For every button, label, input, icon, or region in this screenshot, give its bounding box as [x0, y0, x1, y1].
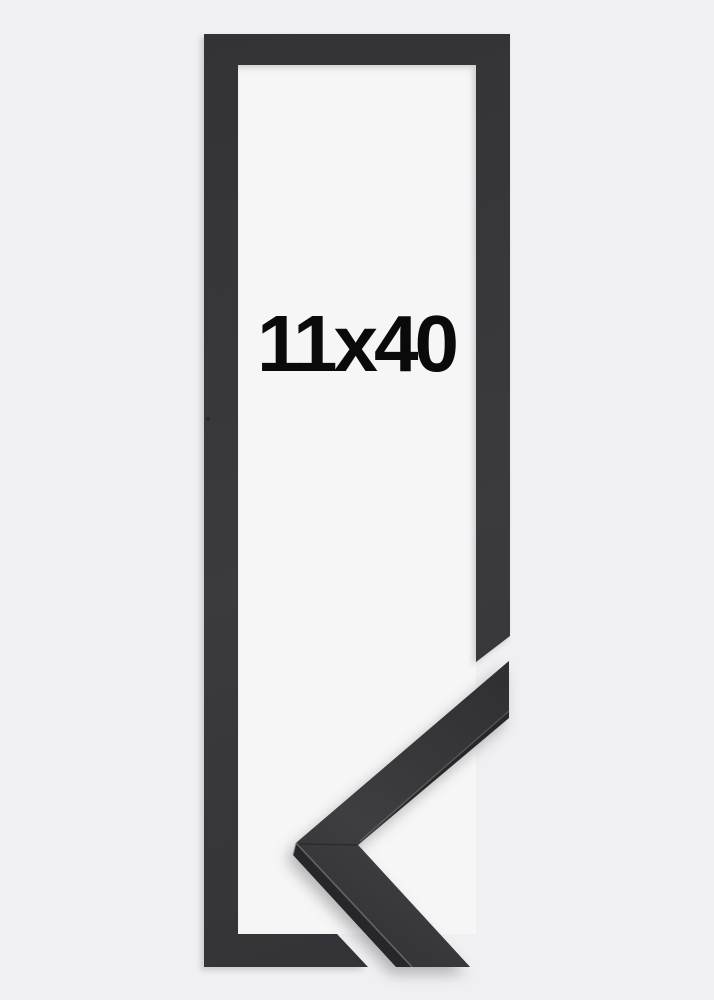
frame-speck: [206, 417, 210, 421]
product-photo: 11x40: [0, 0, 714, 1000]
frame-product-illustration: 11x40: [0, 0, 714, 1000]
size-label: 11x40: [257, 299, 457, 388]
